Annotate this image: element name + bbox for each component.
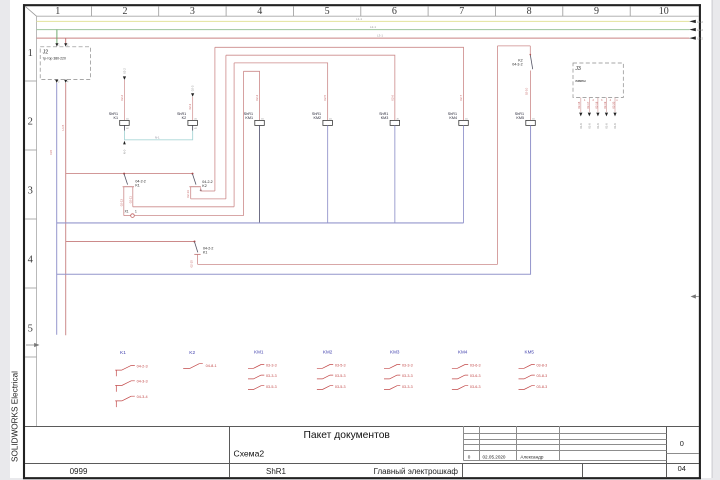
svg-text:02-3: 02-3 bbox=[188, 103, 192, 109]
svg-text:7: 7 bbox=[459, 6, 464, 17]
svg-text:01-6: 01-6 bbox=[605, 123, 609, 129]
svg-text:03-6-3: 03-6-3 bbox=[470, 374, 481, 378]
svg-text:L3-2: L3-2 bbox=[697, 37, 703, 41]
svg-text:02-6: 02-6 bbox=[390, 95, 394, 101]
svg-text:KM5: KM5 bbox=[525, 350, 535, 355]
svg-text:N-0: N-0 bbox=[123, 149, 127, 154]
svg-text:J3: J3 bbox=[575, 66, 581, 72]
svg-text:04: 04 bbox=[678, 464, 686, 473]
svg-text:02-13: 02-13 bbox=[119, 199, 123, 207]
svg-text:04-3-2: 04-3-2 bbox=[512, 62, 522, 66]
svg-text:3: 3 bbox=[190, 6, 195, 17]
svg-text:K2: K2 bbox=[189, 350, 195, 356]
svg-text:3: 3 bbox=[28, 186, 33, 197]
svg-text:0999: 0999 bbox=[70, 467, 88, 476]
svg-text:KM3: KM3 bbox=[381, 116, 389, 120]
svg-text:Александр: Александр bbox=[520, 454, 543, 459]
svg-text:лампы: лампы bbox=[575, 79, 586, 83]
svg-text:KM2: KM2 bbox=[323, 350, 333, 355]
svg-text:4: 4 bbox=[257, 6, 262, 17]
svg-text:01-6: 01-6 bbox=[596, 123, 600, 129]
svg-text:KM2: KM2 bbox=[314, 116, 322, 120]
svg-text:03-3-3: 03-3-3 bbox=[266, 364, 277, 368]
svg-text:5: 5 bbox=[28, 324, 33, 335]
svg-text:K2: K2 bbox=[202, 184, 206, 188]
svg-text:тр-тор 380-220: тр-тор 380-220 bbox=[43, 56, 66, 60]
svg-text:L3-1: L3-1 bbox=[377, 34, 383, 38]
svg-text:6: 6 bbox=[392, 6, 397, 17]
svg-text:KM3: KM3 bbox=[390, 350, 400, 355]
svg-text:K1: K1 bbox=[120, 350, 126, 356]
svg-text:N-5: N-5 bbox=[49, 149, 53, 154]
svg-text:02-19: 02-19 bbox=[603, 101, 607, 108]
svg-text:02.05.2020: 02.05.2020 bbox=[483, 454, 506, 459]
svg-text:03-5-3: 03-5-3 bbox=[335, 374, 346, 378]
svg-text:K1: K1 bbox=[113, 116, 118, 120]
svg-text:04-3-3: 04-3-3 bbox=[137, 380, 148, 384]
svg-text:03-8-3: 03-8-3 bbox=[537, 374, 548, 378]
svg-text:02-5: 02-5 bbox=[323, 95, 327, 101]
svg-text:2: 2 bbox=[28, 117, 33, 128]
svg-text:5: 5 bbox=[325, 6, 330, 17]
svg-text:03-6-3: 03-6-3 bbox=[470, 364, 481, 368]
svg-text:KM4: KM4 bbox=[458, 350, 468, 355]
svg-text:Схема2: Схема2 bbox=[234, 448, 265, 458]
svg-text:KM1: KM1 bbox=[254, 350, 264, 355]
svg-text:02-18: 02-18 bbox=[594, 101, 598, 108]
svg-text:1: 1 bbox=[55, 6, 60, 17]
svg-text:02-16: 02-16 bbox=[577, 101, 581, 108]
svg-text:02-7: 02-7 bbox=[459, 95, 463, 101]
svg-text:04-2-3: 04-2-3 bbox=[137, 364, 148, 368]
svg-text:N-1: N-1 bbox=[155, 136, 160, 140]
svg-text:4: 4 bbox=[28, 255, 34, 266]
svg-text:Пакет документов: Пакет документов bbox=[304, 430, 391, 441]
svg-text:02-3: 02-3 bbox=[191, 85, 195, 91]
svg-text:J2: J2 bbox=[43, 49, 49, 55]
svg-text:01-6: 01-6 bbox=[588, 123, 592, 129]
svg-text:02-10: 02-10 bbox=[525, 87, 529, 95]
svg-text:K1: K1 bbox=[135, 184, 139, 188]
svg-text:9: 9 bbox=[594, 6, 599, 17]
svg-text:02-2: 02-2 bbox=[122, 68, 126, 74]
svg-text:10: 10 bbox=[659, 6, 669, 17]
svg-text:03-3-3: 03-3-3 bbox=[402, 374, 413, 378]
svg-text:SOLIDWORKS Electrical: SOLIDWORKS Electrical bbox=[11, 371, 20, 462]
svg-text:KM1: KM1 bbox=[245, 116, 253, 120]
svg-text:03-8-3: 03-8-3 bbox=[537, 385, 548, 389]
svg-text:X1: X1 bbox=[125, 210, 129, 214]
svg-text:1: 1 bbox=[28, 48, 33, 59]
svg-text:03-8-3: 03-8-3 bbox=[537, 364, 548, 368]
svg-text:03-3-3: 03-3-3 bbox=[402, 364, 413, 368]
svg-text:KM5: KM5 bbox=[516, 116, 524, 120]
svg-text:L2-2: L2-2 bbox=[697, 28, 703, 32]
svg-text:02-17: 02-17 bbox=[586, 101, 590, 108]
svg-text:04-8-1: 04-8-1 bbox=[206, 364, 217, 368]
svg-text:03-6-3: 03-6-3 bbox=[470, 385, 481, 389]
svg-text:03-3-3: 03-3-3 bbox=[402, 385, 413, 389]
svg-text:02-15: 02-15 bbox=[190, 260, 194, 268]
svg-text:03-5-3: 03-5-3 bbox=[335, 364, 346, 368]
svg-text:KM4: KM4 bbox=[449, 116, 457, 120]
svg-text:03-3-3: 03-3-3 bbox=[266, 374, 277, 378]
svg-text:01-6: 01-6 bbox=[579, 123, 583, 129]
svg-text:8: 8 bbox=[527, 6, 532, 17]
svg-text:L2-1: L2-1 bbox=[370, 25, 376, 29]
svg-text:02-4: 02-4 bbox=[255, 95, 259, 101]
svg-text:04-3-4: 04-3-4 bbox=[137, 395, 148, 399]
svg-text:1: 1 bbox=[135, 210, 137, 214]
svg-text:01-6: 01-6 bbox=[613, 123, 617, 129]
svg-text:02-11: 02-11 bbox=[128, 196, 132, 203]
svg-text:L1-5: L1-5 bbox=[61, 124, 65, 130]
svg-text:0: 0 bbox=[468, 454, 471, 459]
svg-text:L1-2: L1-2 bbox=[697, 20, 703, 24]
svg-text:0: 0 bbox=[680, 439, 684, 448]
svg-text:ShR1: ShR1 bbox=[266, 467, 287, 476]
svg-text:L1-1: L1-1 bbox=[356, 17, 362, 21]
svg-text:K1: K1 bbox=[203, 250, 207, 254]
svg-text:03-5-3: 03-5-3 bbox=[266, 385, 277, 389]
svg-text:Главный электрошкаф: Главный электрошкаф bbox=[374, 467, 459, 476]
svg-text:02-2: 02-2 bbox=[120, 95, 124, 101]
svg-text:K2: K2 bbox=[182, 116, 187, 120]
svg-text:03-5-3: 03-5-3 bbox=[335, 385, 346, 389]
svg-text:02-20: 02-20 bbox=[611, 101, 615, 108]
svg-text:02-14: 02-14 bbox=[186, 190, 190, 198]
svg-text:2: 2 bbox=[123, 6, 128, 17]
